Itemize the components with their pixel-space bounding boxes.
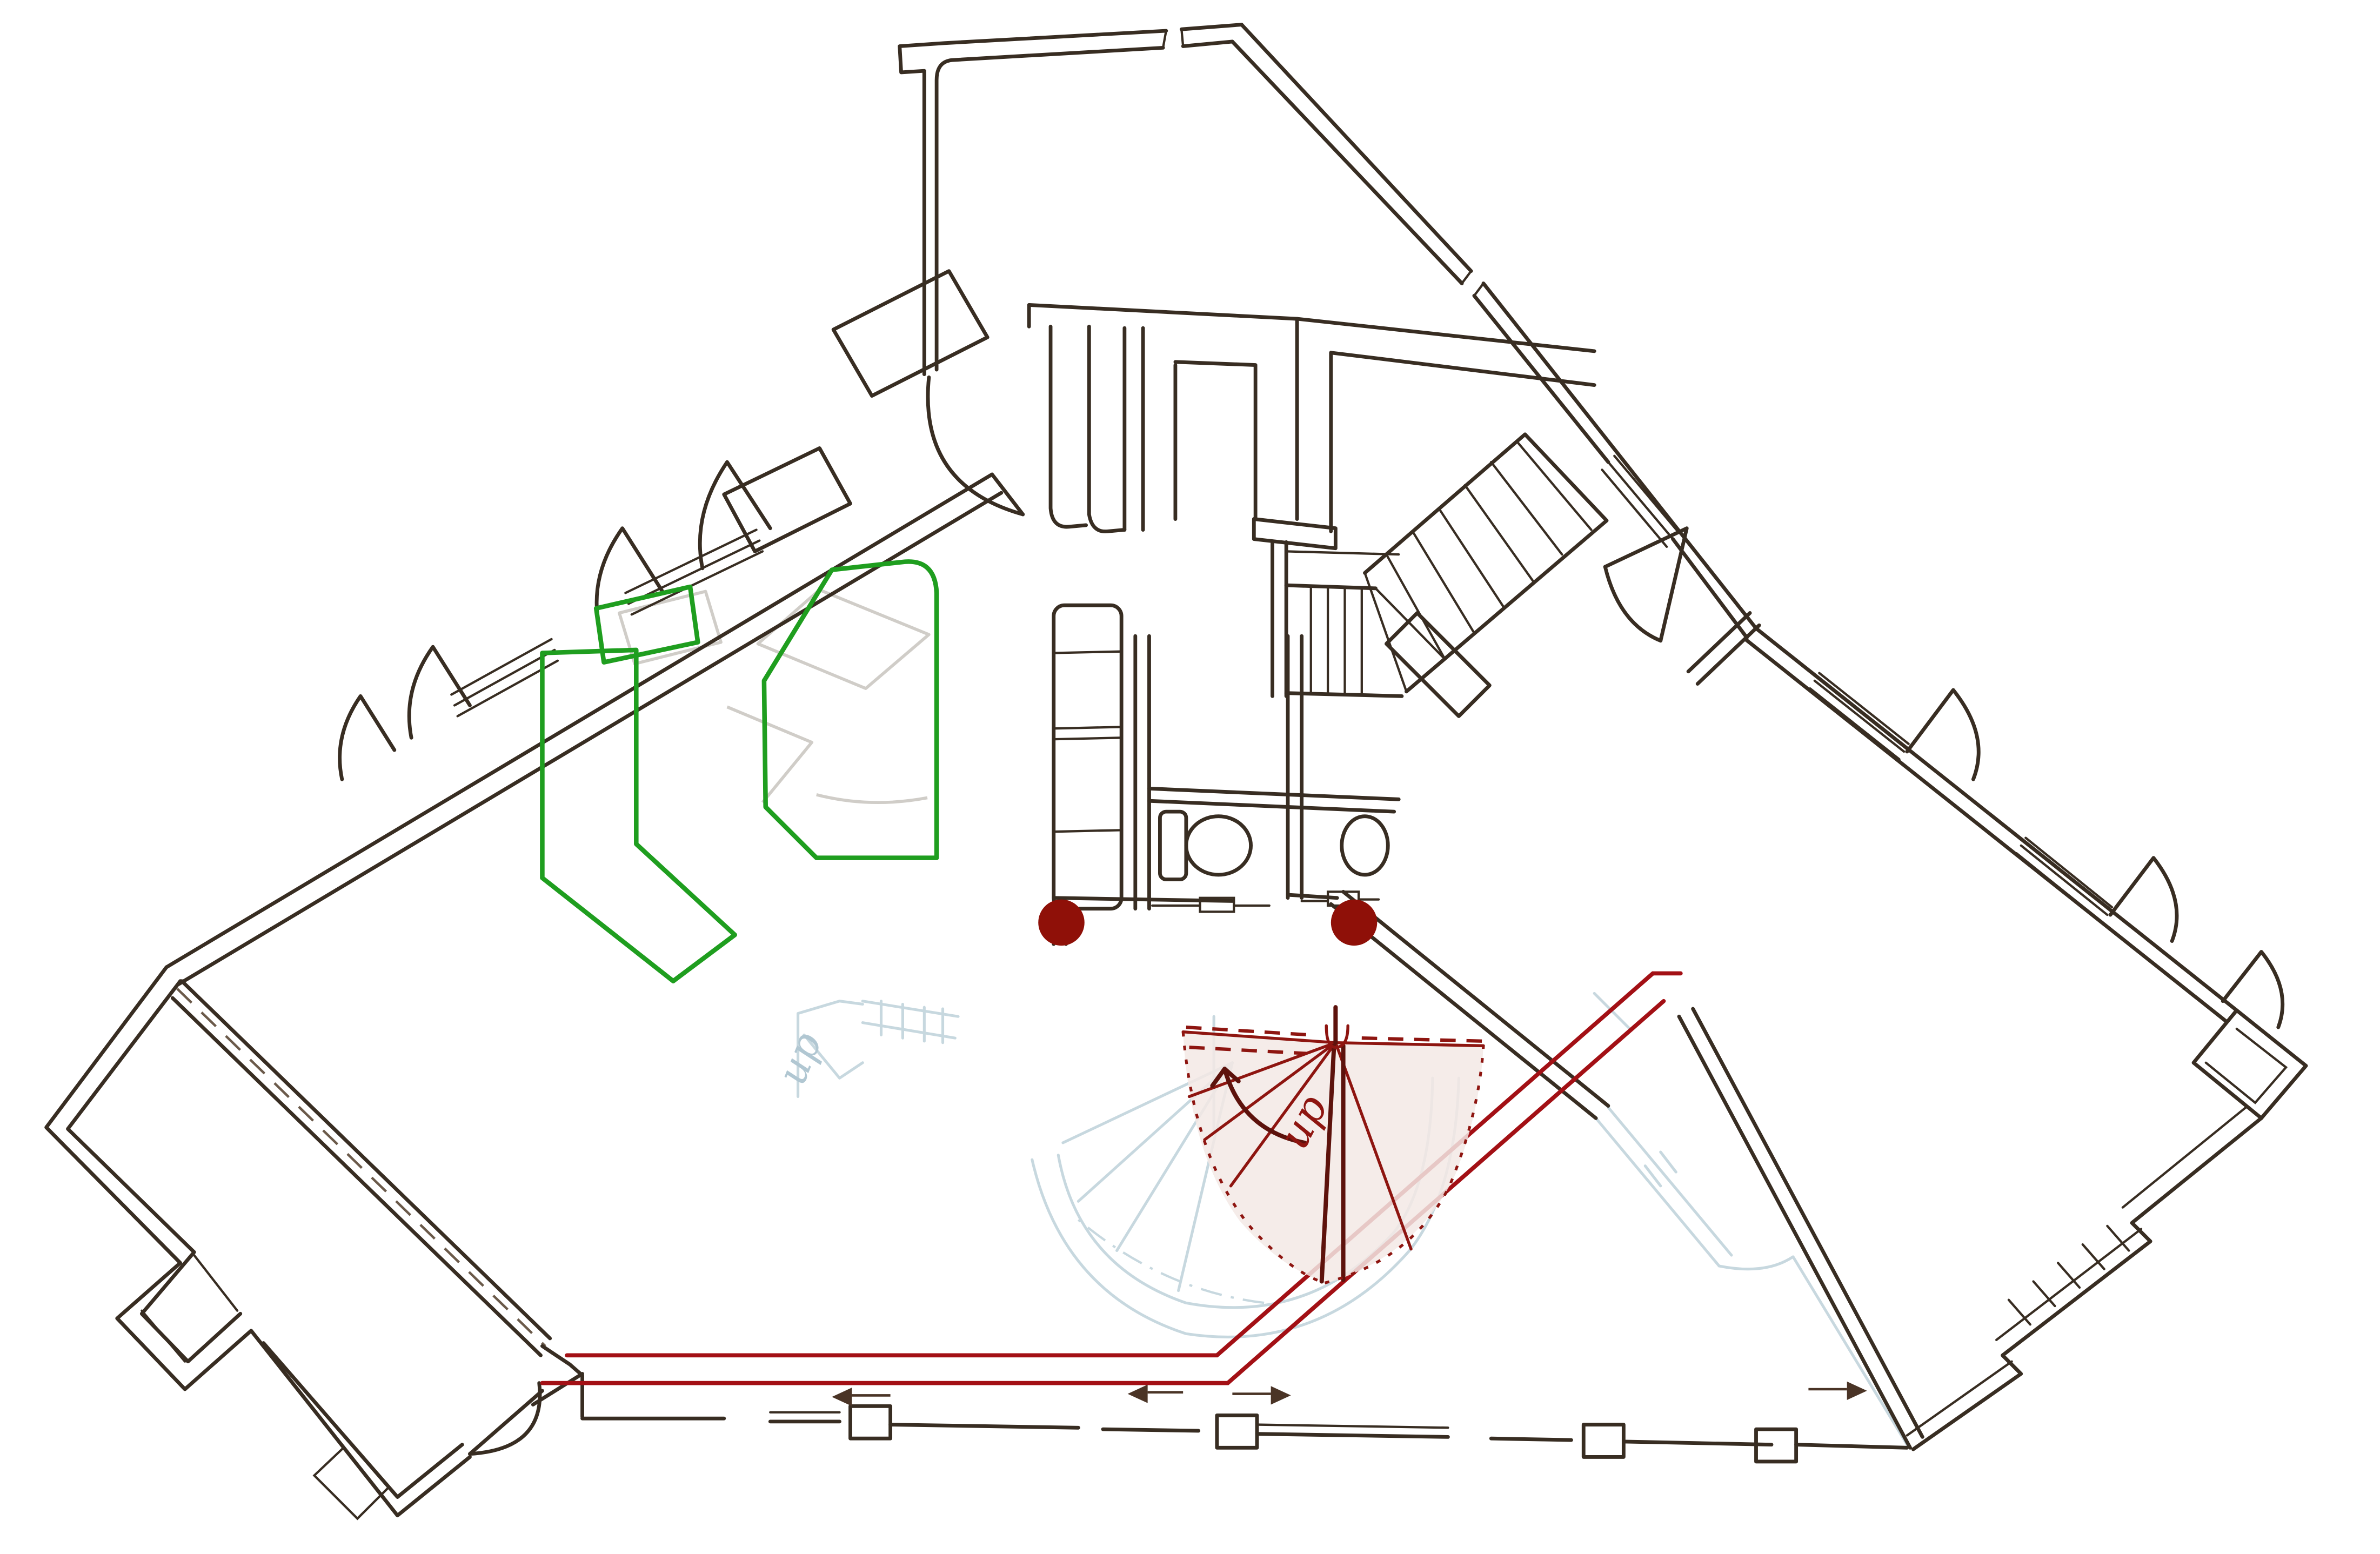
ne-wall-notch	[1462, 271, 1483, 296]
window-flag-nw-4	[340, 696, 395, 779]
staircase	[1272, 434, 1687, 716]
closet-cells	[1051, 326, 1143, 531]
bay-window-left	[142, 1252, 240, 1361]
corridor-bottom-wall	[1149, 788, 1399, 812]
right-wing-nw-stub	[1688, 613, 1759, 684]
right-wing-sw-wall	[1679, 1009, 1922, 1448]
top-room	[900, 25, 1242, 514]
cabinet-box-1	[833, 271, 987, 396]
right-wing-se-zigzag-outer	[1913, 1118, 2261, 1449]
direction-arrow-left-1	[832, 1388, 890, 1406]
bay-window-right	[2194, 1010, 2306, 1118]
band-right-walls	[1297, 319, 1594, 531]
stair-treads-upper	[1386, 442, 1591, 659]
stair-winder-lines	[1365, 573, 1445, 691]
ink-layer	[46, 25, 2306, 1519]
wall-cassette-window-3	[1810, 673, 1908, 760]
sink-basin	[1342, 816, 1388, 875]
right-wing-ne-outer	[1756, 628, 2237, 1010]
ghost-furniture-chevron	[727, 707, 812, 802]
ghost-gray-layer	[619, 590, 929, 803]
wall-cassette-window-4	[2016, 838, 2112, 923]
toilet-bowl	[1186, 816, 1251, 875]
direction-arrow-right-2	[1808, 1382, 1867, 1400]
furniture-outline-pentagon	[764, 561, 937, 858]
left-wing-inner-wall	[68, 981, 463, 1497]
ghost-furniture-arc	[817, 795, 927, 802]
stair-treads-lower	[1311, 588, 1362, 693]
bathroom-bottom-lines	[1054, 895, 1337, 901]
facade-second-lines	[770, 1412, 1448, 1428]
window-flag-nw-2	[597, 528, 663, 627]
band-top-wall	[1029, 305, 1594, 351]
window-mullion-tick	[1163, 29, 1183, 48]
nw-wall-outer	[166, 474, 1023, 967]
top-room-outer-wall	[900, 25, 1242, 374]
wall-cassette-stair-window	[1602, 456, 1679, 547]
ghost-furniture-diamond	[758, 590, 928, 688]
stair-top-line	[1286, 551, 1399, 554]
facade-post	[1583, 1425, 1623, 1457]
path-line-lower	[542, 1001, 1663, 1383]
cavity-wall-dashed	[172, 981, 582, 1417]
door-fan-upper	[1605, 528, 1687, 641]
closet-shelves	[1054, 652, 1121, 832]
furniture-outline-band	[542, 650, 734, 981]
stairwell-left-wall	[1272, 542, 1286, 696]
scanned-floor-plan-sheet: { "document": { "kind": "hand-drawn floo…	[0, 0, 2380, 1554]
direction-arrow-left-2	[1128, 1384, 1184, 1403]
top-room-inner-wall	[937, 42, 1232, 370]
doorway-frame	[1175, 362, 1335, 548]
bottom-facade	[583, 1382, 1907, 1462]
right-wing-ne-inner	[1746, 639, 2226, 1021]
window-flag-nw-3	[409, 647, 470, 738]
stair-upper-stringers	[1365, 434, 1607, 692]
bathroom-divider-wall	[1288, 636, 1302, 898]
window-flag-ne-2	[2110, 858, 2177, 941]
lower-floor-stair-hatch	[863, 1001, 958, 1043]
window-hatch-se	[2009, 1226, 2129, 1324]
toilet-tank	[1160, 812, 1186, 879]
red-path-layer	[542, 973, 1680, 1383]
toilet	[1160, 812, 1251, 879]
direction-arrow-right-1	[1232, 1386, 1291, 1404]
floor-plan-canvas: up	[0, 0, 2380, 1554]
central-partitions	[1029, 305, 1594, 548]
corridor-wall-left	[1135, 636, 1149, 909]
column-dot-right	[1331, 900, 1378, 946]
window-flag-ne-1	[1907, 690, 1978, 779]
facade-post	[850, 1406, 890, 1438]
up-label-ghost: up	[768, 1026, 831, 1091]
entry-door-left-wing	[470, 1383, 542, 1454]
column-dot-left	[1038, 900, 1085, 946]
facade-wall-segments	[583, 1418, 1907, 1448]
right-wing-se-zigzag-inner	[1907, 1107, 2246, 1435]
northwest-window-wall	[166, 271, 1023, 984]
winder-stair-fan: up	[1038, 900, 1483, 1283]
facade-post	[1217, 1415, 1257, 1448]
left-wing	[46, 967, 583, 1518]
right-wing	[1679, 613, 2306, 1449]
